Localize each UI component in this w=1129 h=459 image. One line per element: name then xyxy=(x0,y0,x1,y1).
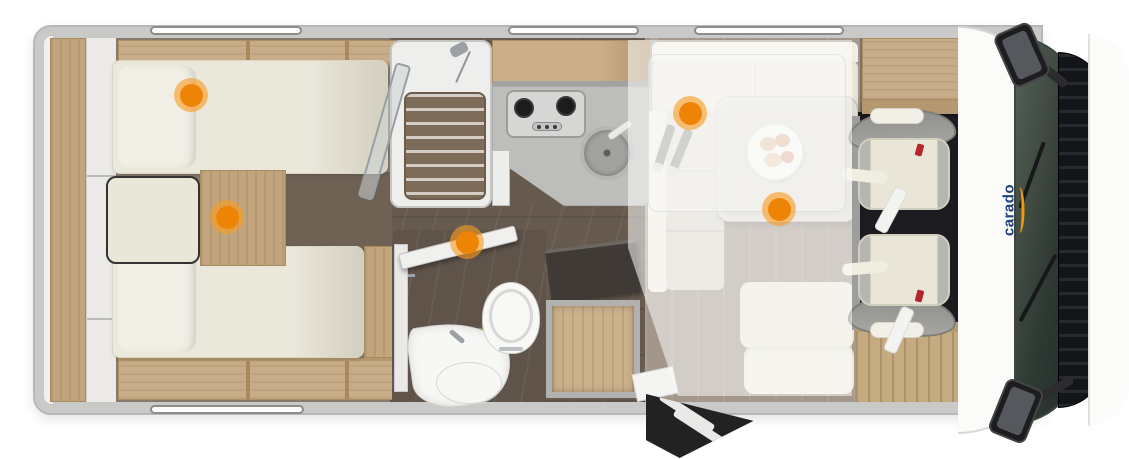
brand-logo: carado xyxy=(986,150,1040,270)
toilet-hinge xyxy=(499,347,523,351)
hob-burner xyxy=(556,96,576,116)
kitchen-overhead-cabinet xyxy=(492,40,650,86)
pillow xyxy=(118,252,196,352)
passenger-headrest xyxy=(870,108,924,124)
locker-divider xyxy=(246,361,250,399)
shower-duckboard xyxy=(404,92,486,200)
hotspot-marker-icon xyxy=(768,198,791,221)
wardrobe-open-lid xyxy=(545,239,641,304)
hotspot-rear-bed-center[interactable] xyxy=(210,200,244,234)
sink-drain xyxy=(604,150,611,157)
hob-knob xyxy=(545,125,549,129)
toilet-seat xyxy=(489,289,533,343)
center-bed-cushion xyxy=(106,176,200,264)
roof-window xyxy=(694,26,844,35)
hotspot-marker-icon xyxy=(216,206,239,229)
sideboard-top xyxy=(862,38,962,100)
hood-panel xyxy=(1088,34,1129,426)
washbasin-bowl xyxy=(436,362,502,404)
toilet xyxy=(482,282,540,354)
hotspot-dinette-table[interactable] xyxy=(762,192,796,226)
roof-window xyxy=(150,405,304,414)
hotspot-marker-icon xyxy=(679,102,702,125)
bed-foot-cabinet xyxy=(364,246,394,358)
wardrobe xyxy=(546,300,640,398)
roof-window xyxy=(150,26,302,35)
hob-knob xyxy=(537,125,541,129)
roof-window xyxy=(508,26,639,35)
hotspot-bathroom-door[interactable] xyxy=(450,225,484,259)
hotspot-marker-icon xyxy=(456,231,479,254)
overhead-locker-bottom xyxy=(118,358,398,400)
door-step xyxy=(673,408,730,449)
towel-hook xyxy=(408,274,415,277)
hotspot-rear-bed-top[interactable] xyxy=(174,78,208,112)
floorplan-canvas: carado xyxy=(0,0,1129,459)
hotspot-marker-icon xyxy=(180,84,203,107)
dropdown-bed-mattress xyxy=(648,54,846,212)
brand-logo-inner: carado xyxy=(1002,184,1025,236)
hob-knob xyxy=(553,125,557,129)
brand-logo-swoosh xyxy=(1015,187,1025,233)
hob-knobs xyxy=(532,122,562,131)
kitchen-base-cabinet xyxy=(492,150,510,206)
locker-divider xyxy=(345,361,349,399)
rear-shelf xyxy=(50,38,86,402)
mirror-glass xyxy=(996,386,1037,437)
hob-burner xyxy=(514,98,534,118)
hotspot-dinette-bench[interactable] xyxy=(673,96,707,130)
